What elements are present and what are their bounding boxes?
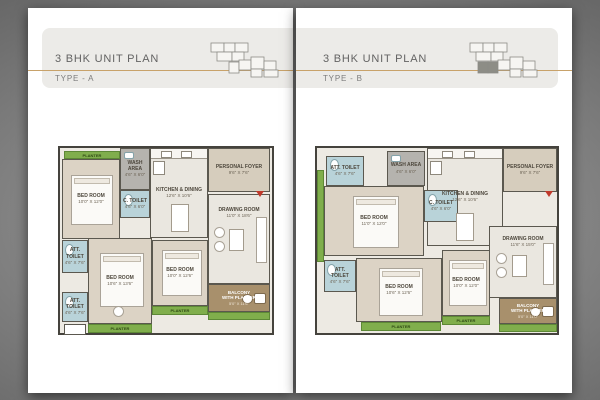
planter-strip xyxy=(499,324,557,332)
room-att-toilet-1: ATT. TOILET 4'6" X 7'6" xyxy=(62,240,88,273)
planter-strip: PLANTER xyxy=(442,316,490,325)
planter-label: PLANTER xyxy=(171,308,190,313)
room-bedroom-2: BED ROOM 10'6" X 12'6" xyxy=(356,258,442,322)
pillow-icon xyxy=(452,263,484,269)
chair-icon xyxy=(113,306,124,317)
planter-strip xyxy=(317,170,324,262)
room-drawing-room: DRAWING ROOM 11'0" X 18'6" xyxy=(208,194,270,284)
planter-label: PLANTER xyxy=(83,153,102,158)
room-dims: 12'6" X 10'6" xyxy=(452,197,477,203)
floor-plan-type-a: PLANTER BED ROOM 10'0" X 12'0" WASH AREA… xyxy=(58,146,274,335)
room-dims: 12'6" X 10'6" xyxy=(166,193,191,199)
fridge-icon xyxy=(153,161,165,175)
planter-strip xyxy=(208,312,270,320)
planter-label: PLANTER xyxy=(111,326,130,331)
room-common-toilet: C. TOILET 4'6" X 6'0" xyxy=(120,190,150,218)
room-dims: 11'6" X 15'0" xyxy=(510,242,535,248)
room-att-toilet-2: ATT. TOILET 4'6" X 7'6" xyxy=(324,260,356,292)
room-personal-foyer: PERSONAL FOYER 9'6" X 7'6" xyxy=(503,148,557,192)
brochure-page-type-a: 3 BHK UNIT PLAN TYPE - A PLANTER BED ROO… xyxy=(28,8,293,393)
room-label: ATT. TOILET xyxy=(64,247,86,260)
pillow-icon xyxy=(382,271,420,277)
sink-icon xyxy=(124,152,134,159)
key-plan-icon xyxy=(207,40,287,82)
page-title: 3 BHK UNIT PLAN xyxy=(55,53,159,65)
brochure-page-type-b: 3 BHK UNIT PLAN TYPE - B ATT. TOILET 4'6… xyxy=(296,8,572,393)
planter-strip: PLANTER xyxy=(152,306,208,315)
chair-icon xyxy=(214,227,225,238)
floor-plan-type-b: ATT. TOILET 4'6" X 7'6" WASH AREA 4'6" X… xyxy=(315,146,559,335)
pillow-icon xyxy=(103,256,141,262)
room-personal-foyer: PERSONAL FOYER 9'6" X 7'6" xyxy=(208,148,270,192)
room-dims: 4'6" X 6'0" xyxy=(125,204,145,210)
dining-table-icon xyxy=(456,213,474,241)
coffee-table-icon xyxy=(512,255,527,277)
room-bedroom-3: BED ROOM 10'0" X 12'0" xyxy=(442,250,490,316)
room-dims: 4'6" X 7'6" xyxy=(65,310,85,316)
room-dims: 4'6" X 7'6" xyxy=(335,171,355,177)
room-bedroom-1: BED ROOM 11'0" X 12'0" xyxy=(324,186,424,256)
entry-arrow-icon xyxy=(545,191,553,197)
room-label: ATT. TOILET xyxy=(64,298,86,311)
chair-icon xyxy=(496,267,507,278)
room-dims: 10'6" X 13'6" xyxy=(107,281,132,287)
room-dims: 5'0" X 11'6" xyxy=(229,301,249,306)
room-label: WASH AREA xyxy=(122,160,148,173)
pillow-icon xyxy=(165,253,199,259)
room-dims: 4'6" X 6'0" xyxy=(396,169,416,175)
chair-icon xyxy=(214,241,225,252)
coffee-table-icon xyxy=(229,229,244,251)
page-subtitle: TYPE - A xyxy=(55,74,94,83)
room-dims: 11'0" X 12'0" xyxy=(361,221,386,227)
room-drawing-room: DRAWING ROOM 11'6" X 15'0" xyxy=(489,226,557,298)
stove-icon xyxy=(442,151,453,158)
page-title: 3 BHK UNIT PLAN xyxy=(323,53,427,65)
room-balcony: BALCONY WITH PLANTER 5'0" X 11'6" xyxy=(208,284,270,312)
room-dims: 9'6" X 7'6" xyxy=(229,170,249,176)
stove-icon xyxy=(161,151,172,158)
room-bedroom-3: BED ROOM 10'0" X 12'6" xyxy=(152,240,208,306)
key-plan-icon xyxy=(466,40,546,82)
pillow-icon xyxy=(74,178,110,184)
room-dims: 4'6" X 7'6" xyxy=(330,279,350,285)
sofa-icon xyxy=(256,217,267,263)
room-bedroom-2: BED ROOM 10'6" X 13'6" xyxy=(88,238,152,324)
room-dims: 9'6" X 7'6" xyxy=(520,170,540,176)
room-dims: 5'0" X 11'0" xyxy=(518,314,538,319)
room-dims: 4'6" X 6'0" xyxy=(431,206,451,212)
room-dims: 4'6" X 7'6" xyxy=(65,260,85,266)
fridge-icon xyxy=(430,161,442,175)
kitchen-counter-icon xyxy=(151,149,207,159)
planter-label: PLANTER xyxy=(392,324,411,329)
room-wash-area: WASH AREA 4'6" X 6'0" xyxy=(387,151,425,186)
room-balcony: BALCONY WITH PLANTER 5'0" X 11'0" xyxy=(499,298,557,324)
room-dims: 10'6" X 12'6" xyxy=(386,290,411,296)
room-dims: 11'0" X 18'6" xyxy=(226,213,251,219)
room-wash-area: WASH AREA 4'6" X 6'0" xyxy=(120,148,150,190)
sink-icon xyxy=(181,151,192,158)
room-dims: 10'0" X 12'0" xyxy=(78,199,103,205)
planter-strip: PLANTER xyxy=(88,324,152,333)
room-dims: 4'6" X 6'0" xyxy=(125,172,145,178)
planter-strip: PLANTER xyxy=(64,151,120,159)
sofa-icon xyxy=(543,243,554,285)
page-subtitle: TYPE - B xyxy=(323,74,363,83)
dining-table-icon xyxy=(171,204,189,232)
room-kitchen-dining: KITCHEN & DINING 12'6" X 10'6" xyxy=(150,148,208,238)
sink-icon xyxy=(391,155,401,162)
sink-icon xyxy=(464,151,475,158)
planter-strip: PLANTER xyxy=(361,322,441,331)
planter-label: PLANTER xyxy=(457,318,476,323)
chair-icon xyxy=(496,253,507,264)
room-dims: 10'0" X 12'6" xyxy=(167,273,192,279)
room-att-toilet-2: ATT. TOILET 4'6" X 7'6" xyxy=(62,292,88,322)
room-label: ATT. TOILET xyxy=(326,267,354,280)
pillow-icon xyxy=(356,199,396,205)
entry-arrow-icon xyxy=(256,191,264,197)
room-bedroom-1: BED ROOM 10'0" X 12'0" xyxy=(62,159,120,239)
room-dims: 10'0" X 12'0" xyxy=(453,283,478,289)
room-att-toilet-1: ATT. TOILET 4'6" X 7'6" xyxy=(326,156,364,186)
entry-step xyxy=(64,324,86,335)
